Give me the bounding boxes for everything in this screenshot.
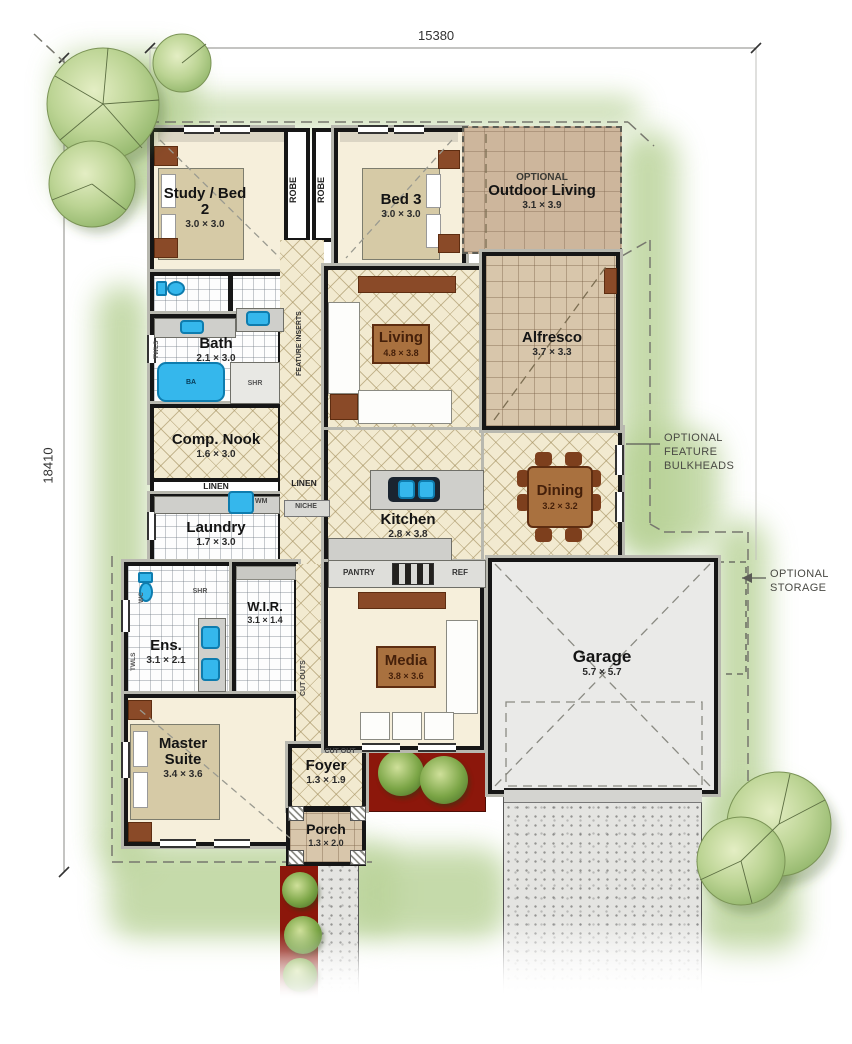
- cut-out-label: CUT OUT: [314, 748, 366, 755]
- room-label-garage: Garage 5.7 × 5.7: [560, 648, 644, 678]
- robe-label: ROBE: [288, 160, 298, 220]
- room-label-ensuite: Ens. 3.1 × 2.1: [134, 638, 198, 666]
- room-label-bath: Bath 2.1 × 3.0: [180, 336, 252, 364]
- dimension-top: 15380: [418, 28, 454, 43]
- floor-plan-canvas: Dining 3.2 × 3.2 BA SHR WM: [0, 0, 852, 1044]
- towels-label-ens: TWLS: [130, 646, 137, 678]
- annotation-feature-bulkheads: OPTIONAL FEATURE BULKHEADS: [664, 432, 734, 473]
- niche-label: NICHE: [284, 503, 328, 510]
- room-dims-dining: 3.2 × 3.2: [542, 501, 577, 511]
- room-label-alfresco: Alfresco 3.7 × 3.3: [512, 330, 592, 358]
- room-label-media: Media 3.8 × 3.6: [376, 646, 436, 688]
- room-label-wir: W.I.R. 3.1 × 1.4: [234, 600, 296, 625]
- room-label-foyer: Foyer 1.3 × 1.9: [294, 758, 358, 786]
- robe-label: ROBE: [316, 160, 326, 220]
- room-label-dining: Dining: [537, 483, 584, 499]
- room-label-porch: Porch 1.3 × 2.0: [294, 822, 358, 848]
- room-label-living: Living 4.8 × 3.8: [372, 324, 430, 364]
- room-label-comp-nook: Comp. Nook 1.6 × 3.0: [158, 432, 274, 460]
- room-label-bed3: Bed 3 3.0 × 3.0: [362, 192, 440, 220]
- linen-label: LINEN: [150, 481, 282, 491]
- pantry-label: PANTRY: [330, 568, 388, 577]
- room-label-outdoor-living: OPTIONAL Outdoor Living 3.1 × 3.9: [478, 172, 606, 211]
- feature-inserts-label: FEATURE INSERTS: [296, 296, 303, 392]
- dimension-left: 18410: [41, 447, 56, 483]
- shr-label-ens: SHR: [180, 588, 220, 595]
- linen-label-2: LINEN: [282, 478, 326, 488]
- tree-cluster-bottom-right: [697, 772, 838, 914]
- ref-label: REF: [440, 568, 480, 577]
- dining-table: Dining 3.2 × 3.2: [527, 466, 593, 528]
- room-label-kitchen: Kitchen 2.8 × 3.8: [370, 512, 446, 540]
- room-label-laundry: Laundry 1.7 × 3.0: [176, 520, 256, 548]
- room-label-master: Master Suite 3.4 × 3.6: [148, 736, 218, 780]
- room-label-study: Study / Bed 2 3.0 × 3.0: [162, 186, 248, 230]
- wc-label-ens: WC: [138, 588, 145, 608]
- towels-label: TWLS: [153, 334, 160, 366]
- wm-label: WM: [255, 498, 267, 505]
- annotation-optional-storage: OPTIONAL STORAGE: [770, 568, 829, 596]
- cut-outs-label: CUT OUTS: [300, 652, 307, 704]
